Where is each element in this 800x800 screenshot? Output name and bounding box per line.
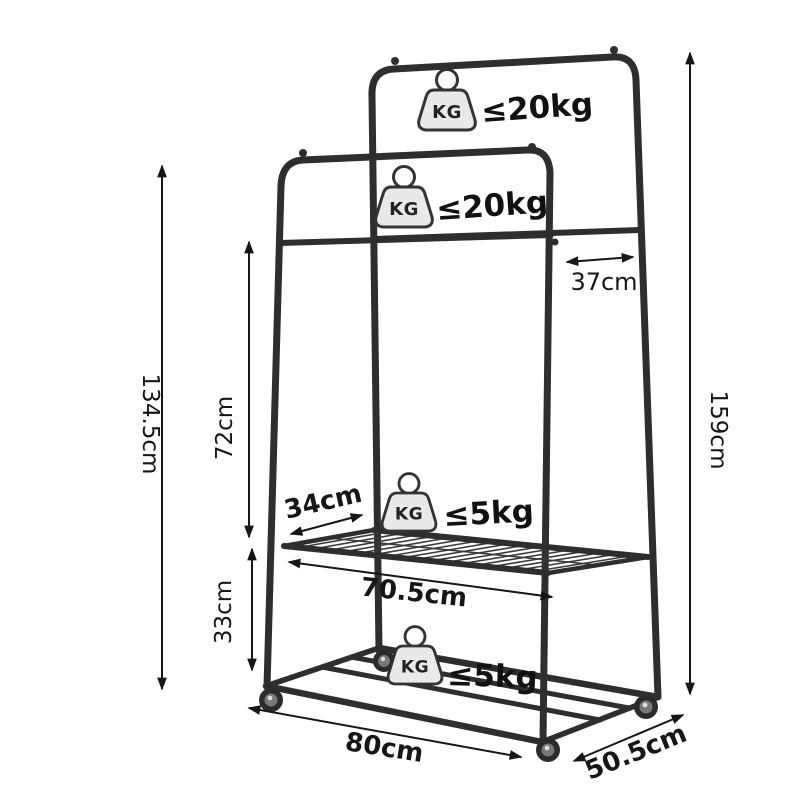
- weight-icon-handle: [399, 474, 419, 494]
- screw-knob-icon: [610, 46, 618, 54]
- dimension-label: 37cm: [570, 268, 637, 296]
- screw-knob-icon: [528, 143, 536, 151]
- caster-wheel-back-right: [634, 695, 658, 719]
- weight-limit-tall-rail: ≤20kg: [480, 86, 594, 130]
- weight-icon-handle: [437, 70, 458, 91]
- weight-limit-short-rail: ≤20kg: [435, 184, 549, 228]
- screw-knob-icon: [299, 149, 307, 157]
- kg-icon-label: KG: [432, 102, 462, 123]
- dimension-rail-gap: 37cm: [567, 257, 638, 296]
- bottom-left-edge: [266, 648, 379, 686]
- dimension-shelf-depth: 34cm: [281, 479, 364, 534]
- weight-icon-handle: [394, 167, 415, 188]
- weight-kg-icon-tall-rail: KG: [419, 70, 476, 131]
- dimension-label: 159cm: [705, 391, 731, 470]
- rack-frame: [267, 46, 658, 741]
- weight-kg-icon-middle-shelf: KG: [382, 474, 436, 531]
- dimension-overall-height: 159cm: [690, 53, 731, 694]
- weight-icon-handle: [405, 627, 425, 647]
- caster-wheel-front-right: [536, 738, 560, 762]
- kg-icon-label: KG: [389, 199, 419, 220]
- weight-limit-bottom-shelf: ≤5kg: [447, 657, 539, 696]
- dimension-short-rack-height: 134.5cm: [137, 166, 163, 689]
- dimension-label: 134.5cm: [137, 374, 163, 475]
- dimension-base-length: 80cm: [249, 708, 521, 769]
- dimension-shelf-to-floor: 33cm: [211, 549, 252, 670]
- dimension-label: 33cm: [211, 580, 237, 644]
- screw-knob-icon: [391, 57, 399, 65]
- garment-rack-dimension-diagram: KG ≤20kg KG ≤20kg KG ≤5kg KG ≤5kg 134.5c…: [0, 0, 800, 800]
- middle-wire-shelf: [284, 530, 648, 573]
- dimension-rail-to-shelf: 72cm: [212, 242, 249, 537]
- weight-kg-icon-short-rail: KG: [376, 167, 433, 228]
- weight-kg-icon-bottom-shelf: KG: [388, 627, 442, 684]
- weight-limit-middle-shelf: ≤5kg: [443, 493, 535, 534]
- kg-icon-label: KG: [395, 505, 423, 525]
- joint-dot: [552, 239, 559, 246]
- kg-icon-label: KG: [401, 658, 429, 678]
- dimension-label: 72cm: [212, 396, 238, 460]
- product-image: KG ≤20kg KG ≤20kg KG ≤5kg KG ≤5kg 134.5c…: [0, 0, 800, 800]
- dimension-label: 80cm: [343, 727, 425, 769]
- dimension-label: 50.5cm: [581, 719, 691, 787]
- dimension-label: 34cm: [281, 479, 364, 526]
